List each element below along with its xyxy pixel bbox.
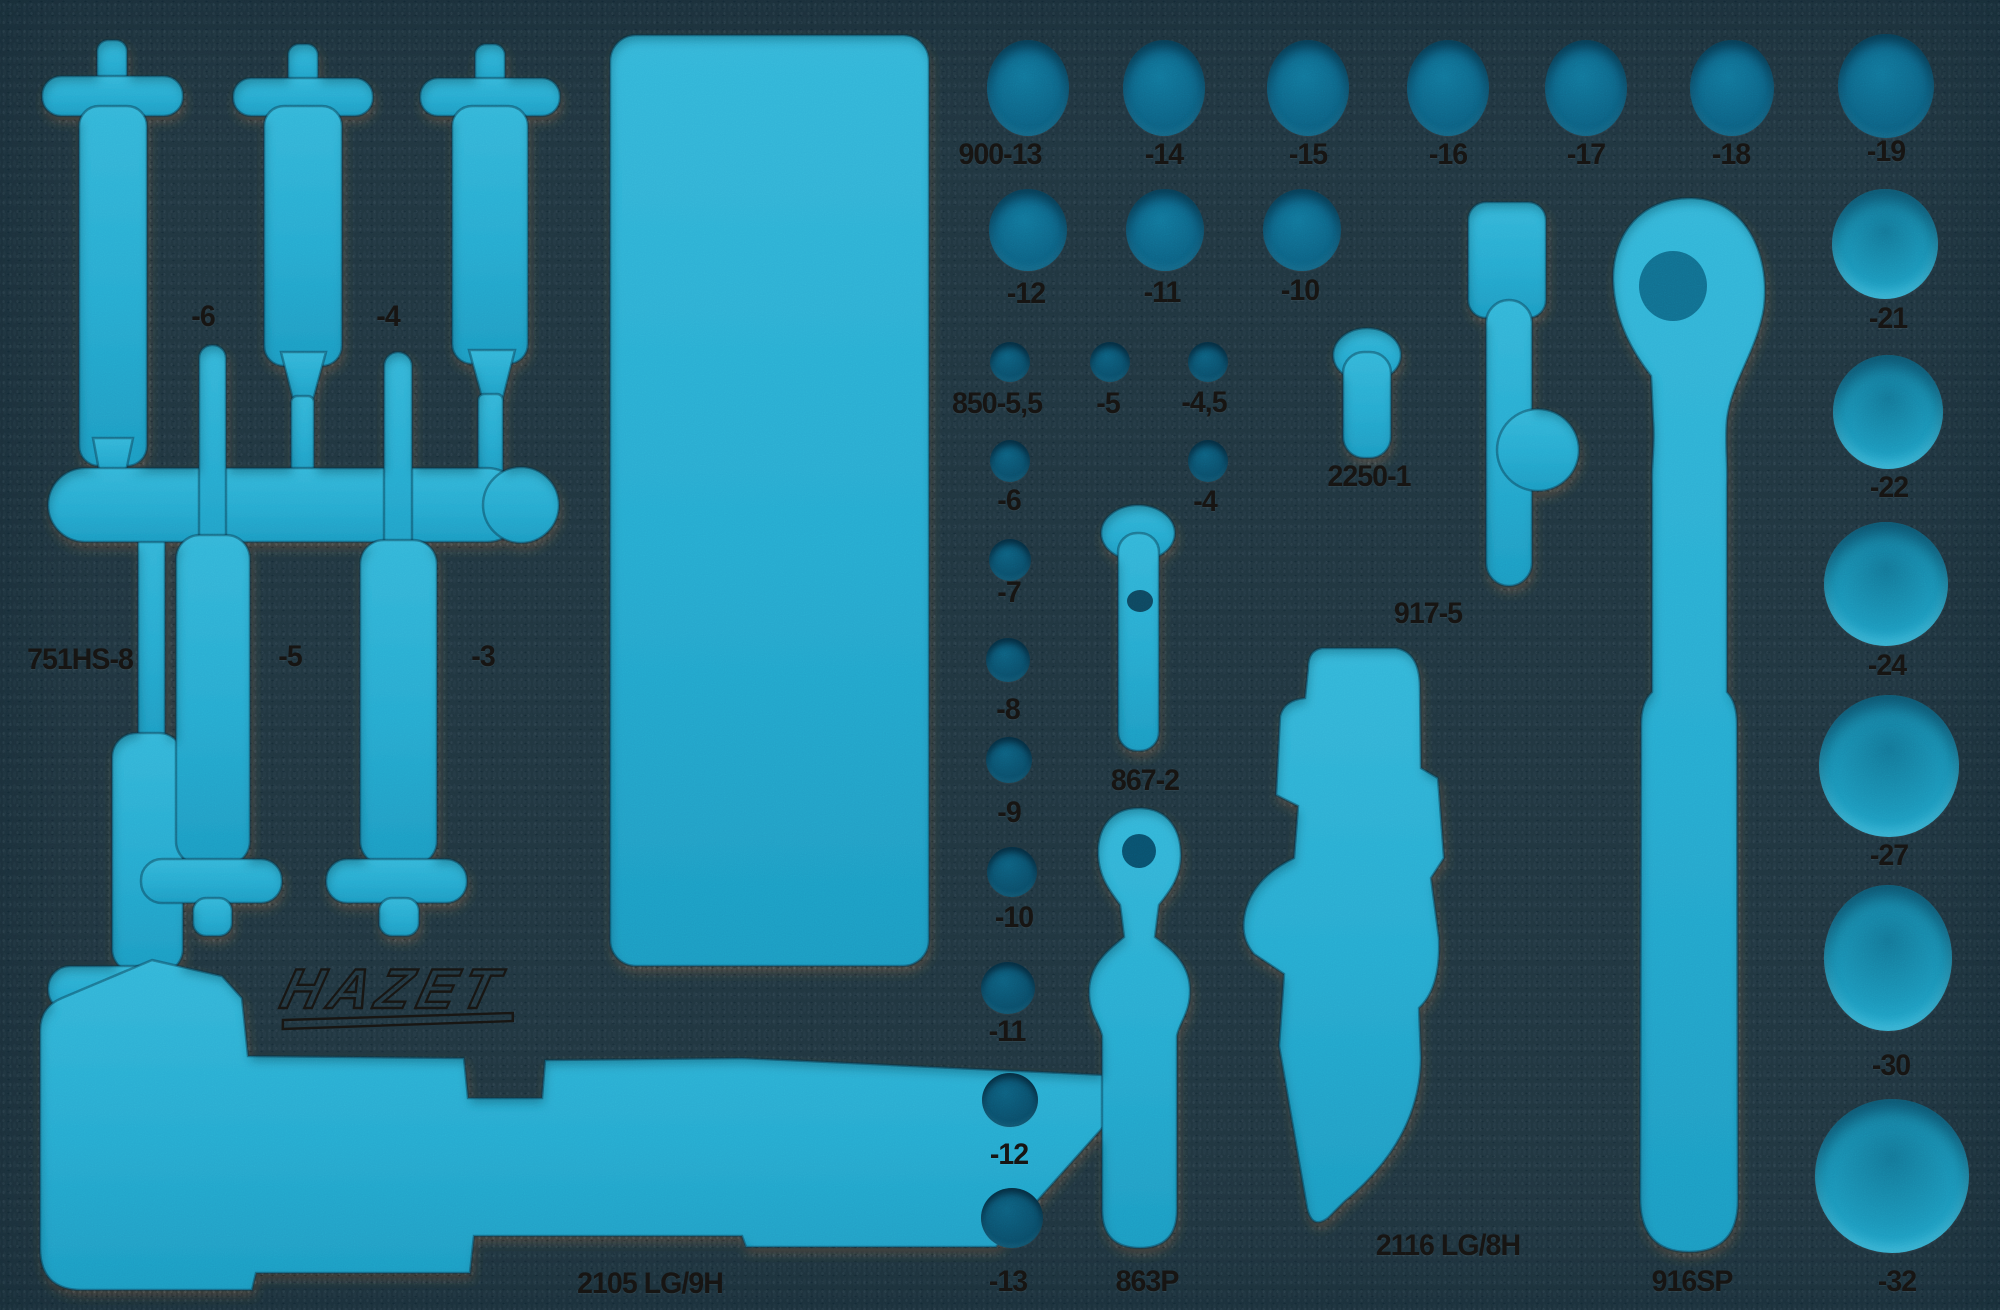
label-917: 917-5 — [1394, 597, 1462, 631]
label-850-9: -9 — [997, 796, 1020, 830]
label-900-13: 900-13 — [958, 138, 1041, 172]
label-850-5: -5 — [1096, 387, 1119, 421]
label-900-14: -14 — [1145, 138, 1183, 172]
label-751-6: -6 — [191, 300, 214, 334]
label-751hs8: 751HS-8 — [27, 643, 133, 677]
label-900-21: -21 — [1869, 302, 1907, 336]
label-900-12: -12 — [1007, 277, 1045, 311]
label-900-16: -16 — [1429, 138, 1467, 172]
label-850-4: -4 — [1193, 485, 1216, 519]
label-900-32: -32 — [1878, 1265, 1916, 1299]
label-850-55: 850-5,5 — [952, 387, 1042, 421]
label-900-11: -11 — [1144, 276, 1181, 310]
label-900-22: -22 — [1870, 471, 1908, 505]
label-850-12: -12 — [990, 1138, 1028, 1172]
label-850-8: -8 — [996, 693, 1019, 727]
label-850-7: -7 — [997, 576, 1020, 610]
label-867: 867-2 — [1111, 764, 1179, 798]
label-850-45: -4,5 — [1181, 386, 1226, 420]
label-900-15: -15 — [1289, 138, 1327, 172]
label-900-19: -19 — [1867, 135, 1905, 169]
label-900-18: -18 — [1712, 138, 1750, 172]
label-850-10: -10 — [995, 901, 1033, 935]
label-863: 863P — [1116, 1265, 1179, 1299]
label-850-13: -13 — [989, 1265, 1027, 1299]
label-2250: 2250-1 — [1327, 460, 1410, 494]
foam-tray-photo: HAZET 900-13-14-15-16-17-18-19-12-11-10-… — [0, 0, 2000, 1310]
label-900-17: -17 — [1567, 138, 1605, 172]
label-751-3: -3 — [471, 640, 494, 674]
label-900-24: -24 — [1868, 649, 1906, 683]
label-900-30: -30 — [1872, 1049, 1910, 1083]
label-916: 916SP — [1652, 1265, 1733, 1299]
label-751-4: -4 — [376, 300, 399, 334]
label-900-27: -27 — [1870, 839, 1908, 873]
label-2116: 2116 LG/8H — [1376, 1229, 1520, 1263]
label-850-11: -11 — [989, 1015, 1026, 1049]
label-2105: 2105 LG/9H — [577, 1267, 723, 1301]
label-900-10: -10 — [1281, 274, 1319, 308]
label-850-6: -6 — [997, 484, 1020, 518]
label-751-5: -5 — [278, 640, 301, 674]
brand-logo-text: HAZET — [275, 959, 512, 1021]
